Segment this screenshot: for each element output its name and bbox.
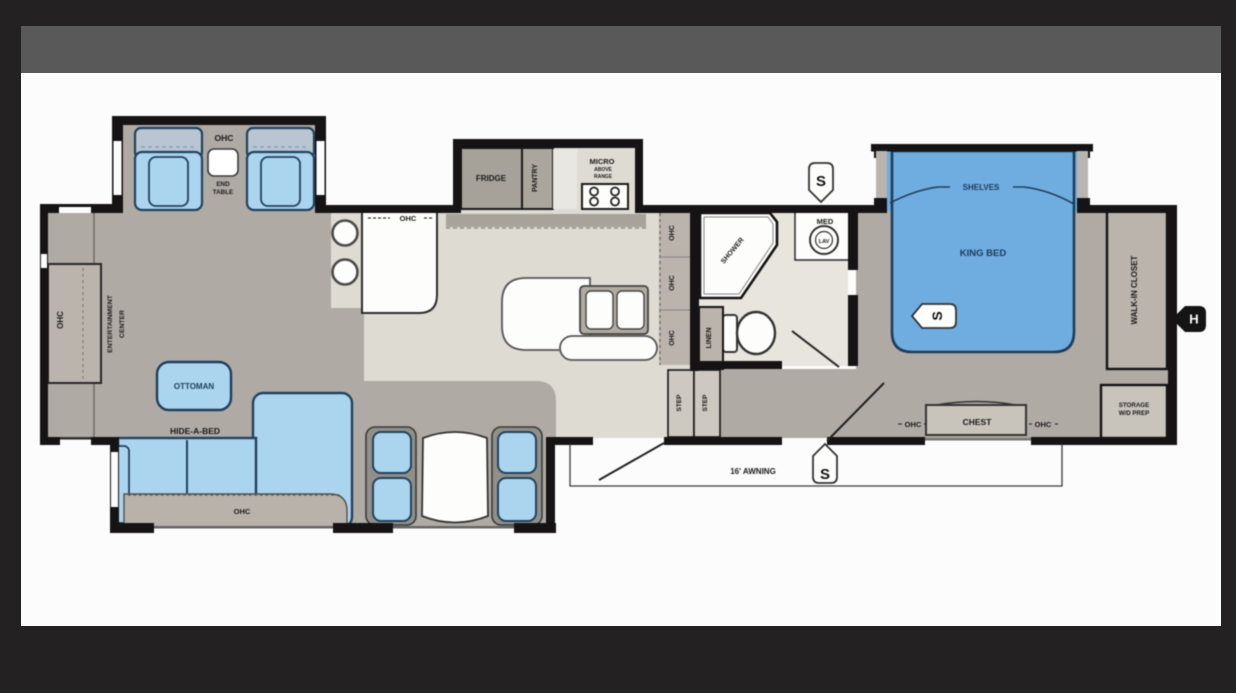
svg-text:ABOVE: ABOVE [594,167,612,173]
svg-text:OHC: OHC [400,214,417,223]
svg-text:MICRO: MICRO [590,157,615,166]
svg-text:OHC: OHC [1035,420,1052,429]
svg-text:STORAGE: STORAGE [1119,402,1149,409]
svg-text:CHEST: CHEST [963,417,993,427]
svg-text:OHC: OHC [669,225,676,241]
svg-text:END: END [216,181,230,188]
svg-text:ENTERTAINMENT: ENTERTAINMENT [107,294,114,352]
svg-text:HIDE-A-BED: HIDE-A-BED [170,426,220,436]
svg-text:FRIDGE: FRIDGE [476,174,507,183]
svg-text:SHELVES: SHELVES [963,183,1000,192]
svg-text:LAV: LAV [819,239,830,245]
svg-text:STEP: STEP [702,394,709,412]
svg-text:OHC: OHC [669,330,676,346]
svg-text:OHC: OHC [905,420,922,429]
svg-text:OHC: OHC [234,507,251,516]
svg-text:PANTRY: PANTRY [532,164,539,192]
svg-text:OHC: OHC [669,275,676,291]
svg-text:TABLE: TABLE [213,189,234,196]
svg-text:CENTER: CENTER [119,310,126,338]
svg-text:H: H [1189,312,1198,327]
svg-text:WALK-IN CLOSET: WALK-IN CLOSET [1130,255,1139,324]
svg-text:S: S [820,466,830,483]
svg-text:LINEN: LINEN [706,328,713,349]
svg-text:MED: MED [817,217,834,226]
svg-text:W/D PREP: W/D PREP [1119,410,1150,417]
svg-text:OHC: OHC [56,311,65,329]
svg-text:RANGE: RANGE [594,174,613,180]
svg-text:S: S [816,173,826,190]
svg-text:OHC: OHC [215,133,234,143]
svg-text:S: S [929,311,945,320]
svg-text:OTTOMAN: OTTOMAN [174,382,215,391]
svg-text:16' AWNING: 16' AWNING [730,467,776,476]
svg-text:STEP: STEP [676,394,683,412]
svg-text:KING BED: KING BED [960,248,1007,259]
